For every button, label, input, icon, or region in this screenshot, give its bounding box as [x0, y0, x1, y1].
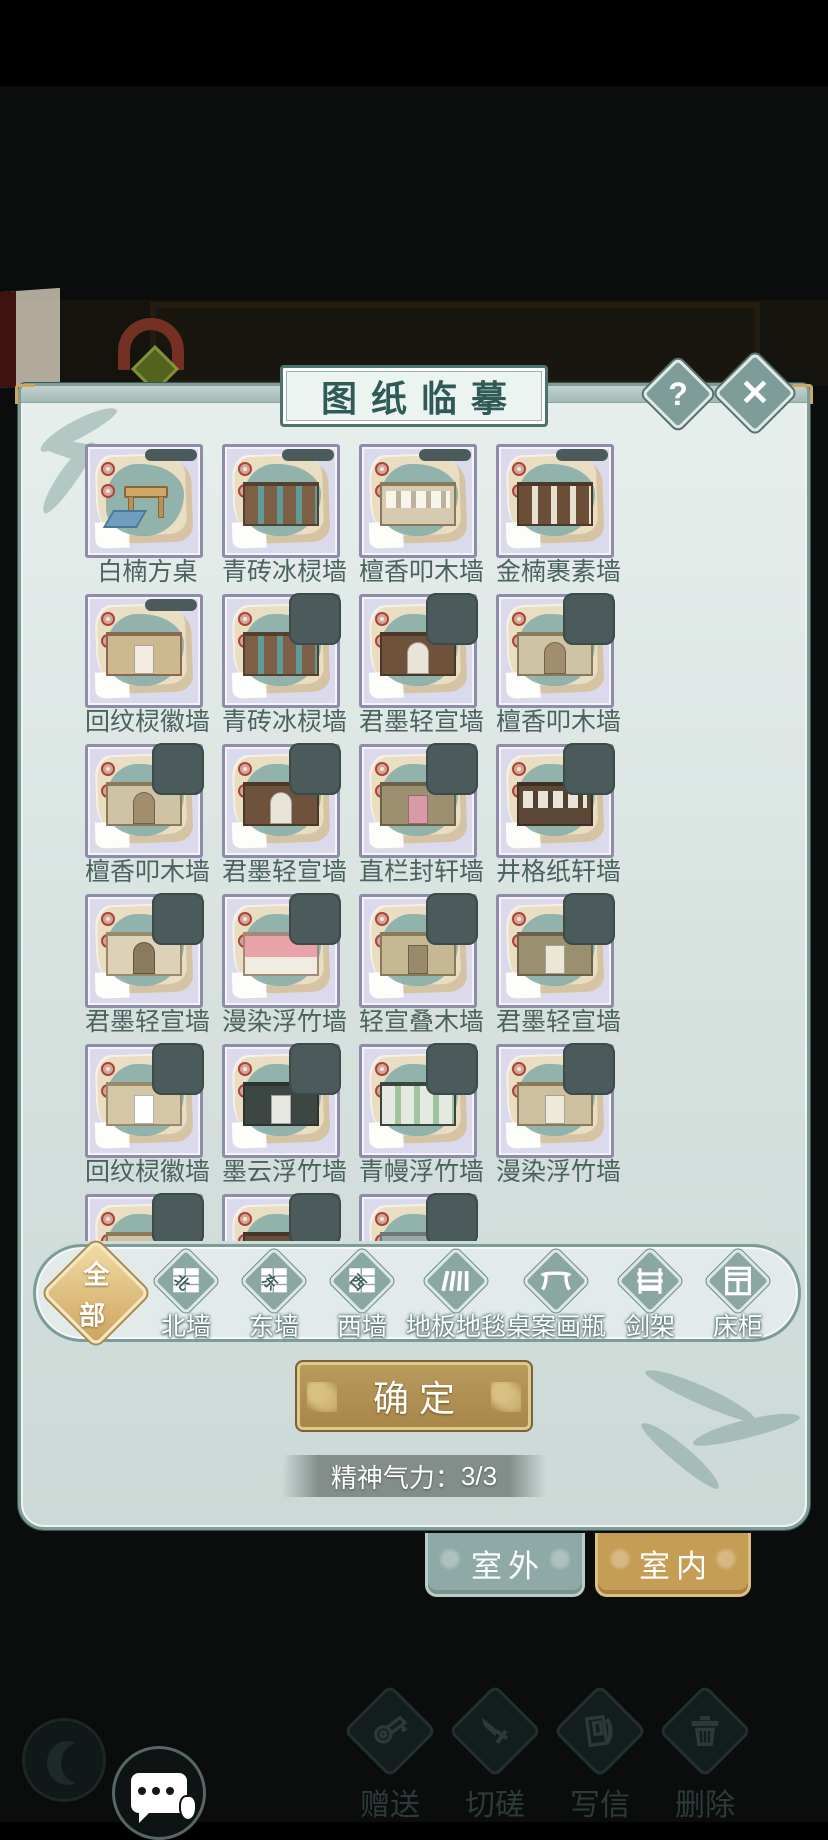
blueprint-thumbnail [106, 482, 182, 526]
blueprint-card[interactable] [85, 744, 203, 858]
red-seal-icon [101, 762, 115, 776]
collapse-button[interactable] [22, 1718, 106, 1802]
jug-icon [179, 1795, 197, 1821]
blueprint-card[interactable] [359, 1044, 477, 1158]
blueprint-thumbnail [243, 482, 319, 526]
count-badge [563, 743, 615, 795]
filter-sword-rack[interactable]: 剑架 [606, 1257, 694, 1343]
gold-corner-ornament-left [15, 384, 35, 404]
filter-all-label: 全 [83, 1254, 109, 1291]
filter-east-wall[interactable]: 东 东墙 [230, 1257, 318, 1343]
write-letter-button[interactable]: 写信 [548, 1698, 652, 1824]
bed-cabinet-icon [704, 1247, 772, 1315]
confirm-button[interactable]: 确定 [295, 1360, 533, 1432]
gift-button[interactable]: 赠送 [338, 1698, 442, 1824]
spar-label: 切磋 [465, 1780, 525, 1824]
count-badge [426, 593, 478, 645]
spirit-energy-value: 3/3 [461, 1461, 497, 1492]
chat-button[interactable] [112, 1746, 206, 1840]
blueprint-cell: 漫染浮竹墙 [216, 888, 353, 1038]
count-badge [426, 743, 478, 795]
blueprint-card-label: 君墨轻宣墙 [496, 1002, 621, 1038]
blueprint-card[interactable] [222, 1044, 340, 1158]
blueprint-card[interactable] [496, 894, 614, 1008]
count-badge [282, 449, 334, 461]
count-badge [145, 449, 197, 461]
count-badge [563, 593, 615, 645]
blueprint-card-label: 漫染浮竹墙 [496, 1152, 621, 1188]
blueprint-card-label: 檀香叩木墙 [359, 552, 484, 588]
table-vase-icon [522, 1247, 590, 1315]
blueprint-card[interactable] [222, 594, 340, 708]
filter-west-wall[interactable]: 西 西墙 [318, 1257, 406, 1343]
blueprint-card[interactable] [496, 1044, 614, 1158]
blueprint-card[interactable] [85, 594, 203, 708]
count-badge [289, 1043, 341, 1095]
red-seal-icon [238, 1062, 252, 1076]
blueprint-card-label: 青幔浮竹墙 [359, 1152, 484, 1188]
red-seal-icon [101, 912, 115, 926]
blueprint-cell: 轻宣叠木墙 [353, 888, 490, 1038]
blueprint-cell: 金楠裹素墙 [490, 438, 627, 588]
petal-ornament-right [491, 1382, 521, 1412]
red-seal-icon [375, 612, 389, 626]
floor-carpet-icon [422, 1247, 490, 1315]
blueprint-dialog-panel: 图纸临摹 ? ✕ 白楠方桌 [18, 383, 810, 1530]
gift-scroll-icon [343, 1684, 436, 1777]
delete-trash-icon [658, 1684, 751, 1777]
petal-ornament-left [307, 1382, 337, 1412]
filter-floor-carpet[interactable]: 地板地毯 [406, 1257, 506, 1343]
red-seal-icon [512, 1062, 526, 1076]
tab-outdoor[interactable]: 室外 [425, 1533, 585, 1597]
blueprint-card[interactable] [496, 594, 614, 708]
dialog-title-box: 图纸临摹 [280, 365, 548, 427]
red-seal-icon [101, 1212, 115, 1226]
blueprint-card-label: 青砖冰棂墙 [222, 702, 347, 738]
blueprint-cell: 檀香叩木墙 [490, 588, 627, 738]
red-seal-icon [238, 1212, 252, 1226]
status-bar [0, 0, 828, 86]
delete-button[interactable]: 删除 [653, 1698, 757, 1824]
blueprint-card[interactable] [85, 1044, 203, 1158]
sword-rack-icon [616, 1247, 684, 1315]
count-badge [426, 1043, 478, 1095]
blueprint-card-label: 直栏封轩墙 [359, 852, 484, 888]
blueprint-card[interactable] [496, 444, 614, 558]
blueprint-card-label: 君墨轻宣墙 [359, 702, 484, 738]
count-badge [563, 1043, 615, 1095]
filter-bed-cabinet[interactable]: 床柜 [694, 1257, 782, 1343]
blueprint-cell: 白楠方桌 [79, 438, 216, 588]
confirm-button-label: 确定 [363, 1370, 465, 1422]
red-seal-icon [512, 762, 526, 776]
blueprint-cell: 檀香叩木墙 [79, 738, 216, 888]
blueprint-card-label: 檀香叩木墙 [496, 702, 621, 738]
count-badge [426, 893, 478, 945]
blueprint-card[interactable] [85, 444, 203, 558]
blueprint-cell: 回纹棂徽墙 [79, 588, 216, 738]
red-seal-icon [238, 612, 252, 626]
close-icon: ✕ [729, 367, 781, 419]
blueprint-cell: 青幔浮竹墙 [353, 1038, 490, 1188]
dialog-title: 图纸临摹 [307, 370, 521, 422]
tab-indoor-label: 室内 [633, 1541, 713, 1586]
tab-indoor[interactable]: 室内 [595, 1533, 751, 1597]
chat-bubble-icon [131, 1773, 187, 1813]
blueprint-cell: 井格纸轩墙 [490, 738, 627, 888]
blueprint-card-label: 白楠方桌 [97, 552, 197, 588]
question-mark-icon: ? [655, 371, 701, 417]
blueprint-cell: 君墨轻宣墙 [353, 588, 490, 738]
delete-label: 删除 [675, 1780, 735, 1824]
count-badge [289, 1193, 341, 1245]
spar-sword-icon [448, 1684, 541, 1777]
blueprint-card[interactable] [359, 744, 477, 858]
blueprint-grid: 白楠方桌 青砖冰棂墙 [21, 438, 807, 1338]
blueprint-cell: 青砖冰棂墙 [216, 438, 353, 588]
blueprint-card-label: 漫染浮竹墙 [222, 1002, 347, 1038]
count-badge [426, 1193, 478, 1245]
red-seal-icon [375, 762, 389, 776]
blueprint-card[interactable] [359, 594, 477, 708]
blueprint-cell: 回纹棂徽墙 [79, 1038, 216, 1188]
blueprint-card-label: 回纹棂徽墙 [85, 702, 210, 738]
crescent-arrow-icon [47, 1741, 87, 1785]
count-badge [289, 593, 341, 645]
filter-all-button[interactable]: 全 部 [42, 1239, 149, 1346]
blueprint-cell: 君墨轻宣墙 [216, 738, 353, 888]
gift-label: 赠送 [360, 1780, 420, 1824]
blueprint-cell: 君墨轻宣墙 [79, 888, 216, 1038]
count-badge [152, 1193, 204, 1245]
blueprint-card[interactable] [496, 744, 614, 858]
blueprint-card-label: 回纹棂徽墙 [85, 1152, 210, 1188]
blueprint-card-label: 墨云浮竹墙 [222, 1152, 347, 1188]
red-seal-icon [512, 612, 526, 626]
gold-corner-ornament-right [793, 384, 813, 404]
red-seal-icon [238, 462, 252, 476]
write-letter-icon [553, 1684, 646, 1777]
red-seal-icon [375, 1062, 389, 1076]
tab-outdoor-label: 室外 [465, 1541, 545, 1586]
filter-table-vase[interactable]: 桌案画瓶 [506, 1257, 606, 1343]
spar-button[interactable]: 切磋 [443, 1698, 547, 1824]
count-badge [289, 893, 341, 945]
category-filter-bar: 全 部 北 北墙 东 东墙 西 西墙 [33, 1244, 801, 1342]
brick-wall-east-icon: 东 [240, 1247, 308, 1315]
red-seal-icon [512, 462, 526, 476]
red-seal-icon [238, 912, 252, 926]
blueprint-card-label: 青砖冰棂墙 [222, 552, 347, 588]
background-book [0, 288, 60, 388]
spirit-energy-bar: 精神气力：3/3 [282, 1455, 546, 1497]
blueprint-thumbnail [106, 632, 182, 676]
count-badge [563, 893, 615, 945]
red-seal-icon [101, 612, 115, 626]
red-seal-icon [375, 462, 389, 476]
blueprint-card-label: 檀香叩木墙 [85, 852, 210, 888]
red-seal-icon [375, 912, 389, 926]
red-seal-icon [101, 462, 115, 476]
blueprint-card[interactable] [359, 894, 477, 1008]
blueprint-thumbnail [517, 482, 593, 526]
red-seal-icon [375, 1212, 389, 1226]
blueprint-cell: 檀香叩木墙 [353, 438, 490, 588]
blueprint-cell: 直栏封轩墙 [353, 738, 490, 888]
count-badge [289, 743, 341, 795]
blueprint-card[interactable] [359, 444, 477, 558]
blueprint-card-label: 金楠裹素墙 [496, 552, 621, 588]
brick-wall-west-icon: 西 [328, 1247, 396, 1315]
count-badge [419, 449, 471, 461]
blueprint-card[interactable] [222, 894, 340, 1008]
blueprint-card-label: 君墨轻宣墙 [85, 1002, 210, 1038]
filter-all-label-2: 部 [79, 1295, 105, 1332]
blueprint-cell: 君墨轻宣墙 [490, 888, 627, 1038]
blueprint-card[interactable] [222, 744, 340, 858]
red-seal-icon [101, 1062, 115, 1076]
blueprint-card-label: 君墨轻宣墙 [222, 852, 347, 888]
blueprint-card-label: 轻宣叠木墙 [359, 1002, 484, 1038]
red-seal-icon [238, 762, 252, 776]
blueprint-cell: 青砖冰棂墙 [216, 588, 353, 738]
count-badge [556, 449, 608, 461]
blueprint-card[interactable] [85, 894, 203, 1008]
blueprint-cell: 漫染浮竹墙 [490, 1038, 627, 1188]
filter-north-wall[interactable]: 北 北墙 [142, 1257, 230, 1343]
blueprint-card[interactable] [222, 444, 340, 558]
count-badge [152, 1043, 204, 1095]
spirit-energy-label: 精神气力： [331, 1458, 461, 1495]
blueprint-cell: 墨云浮竹墙 [216, 1038, 353, 1188]
count-badge [145, 599, 197, 611]
count-badge [152, 743, 204, 795]
brick-wall-north-icon: 北 [152, 1247, 220, 1315]
write-letter-label: 写信 [570, 1780, 630, 1824]
blueprint-card-label: 井格纸轩墙 [496, 852, 621, 888]
red-seal-icon [512, 912, 526, 926]
blueprint-thumbnail [380, 482, 456, 526]
count-badge [152, 893, 204, 945]
